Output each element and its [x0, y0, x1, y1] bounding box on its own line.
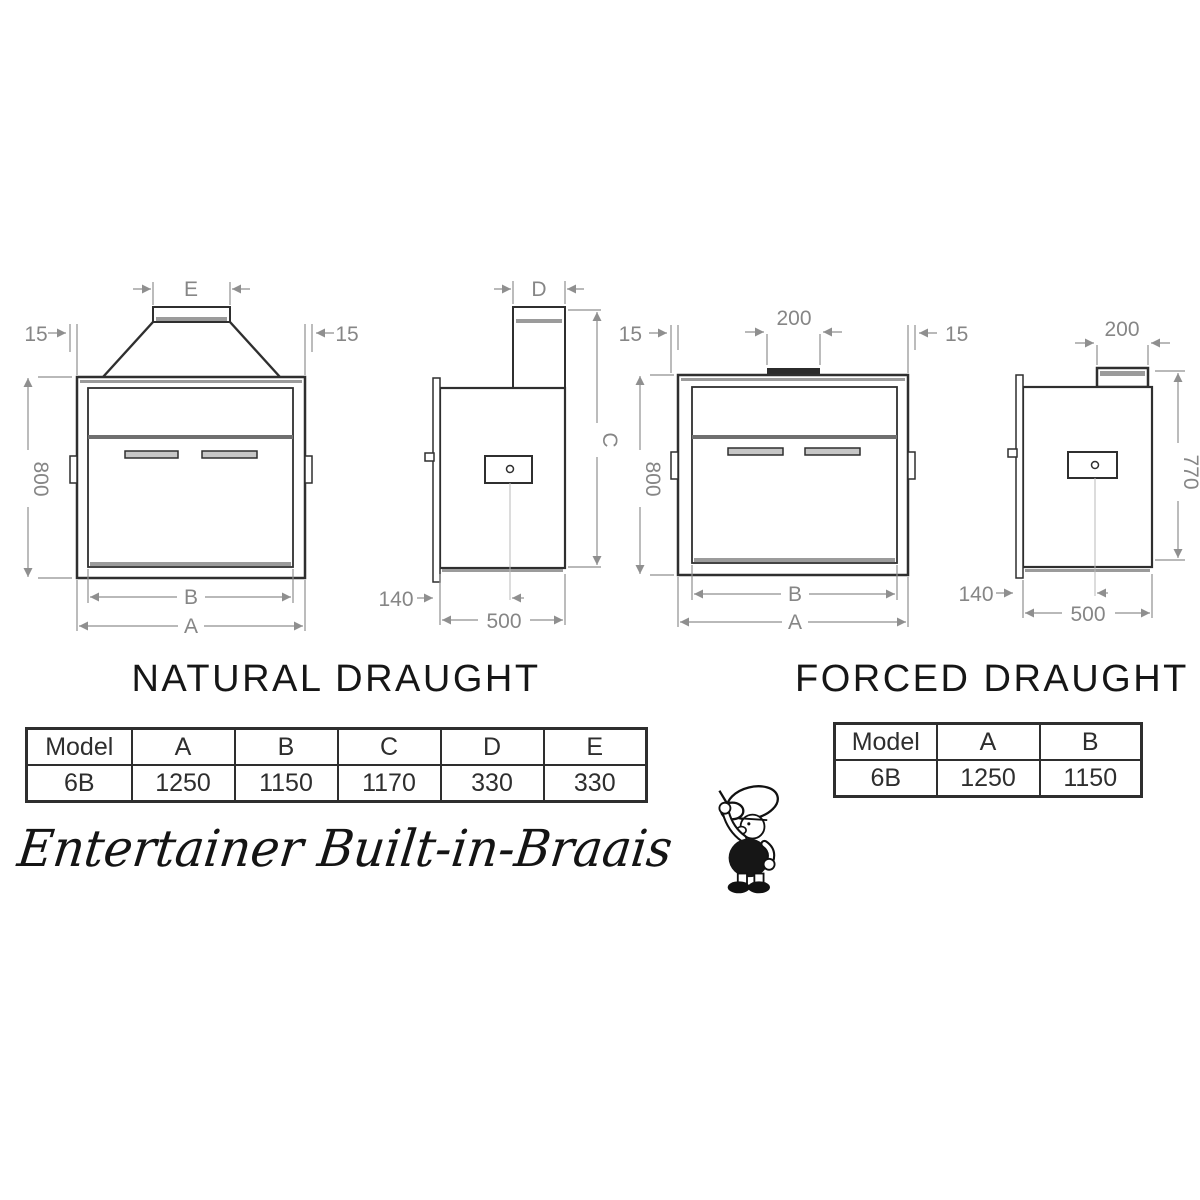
front-flange — [433, 378, 440, 582]
natural-front-view-drawing: E 15 15 800 B — [24, 278, 358, 638]
mounting-tab — [908, 452, 915, 479]
chef-mascot-icon — [701, 779, 793, 899]
dim-label-left-flange: 15 — [24, 323, 47, 346]
hood-right-slope — [230, 322, 280, 377]
value-cell: 1150 — [1040, 760, 1142, 797]
mounting-tab-side — [425, 453, 434, 461]
mounting-tab — [671, 452, 678, 479]
header-cell: Model — [27, 729, 132, 766]
dim-label-depth: 500 — [486, 610, 521, 633]
header-cell: A — [937, 724, 1040, 761]
dim-label-right-flange: 15 — [335, 323, 358, 346]
vent-slot — [805, 448, 860, 455]
fan-box — [1097, 368, 1148, 387]
dim-label-height: 800 — [29, 461, 52, 496]
dim-label-height: 800 — [641, 461, 664, 496]
natural-side-view-drawing: D C 140 500 — [378, 278, 621, 633]
table-row: 6B 1250 1150 — [835, 760, 1142, 797]
forced-draught-title: FORCED DRAUGHT — [795, 658, 1185, 701]
dim-label-inner-width: B — [788, 583, 802, 606]
value-cell: 1170 — [338, 765, 441, 802]
dim-label-overall-width: A — [788, 611, 802, 634]
header-cell: D — [441, 729, 544, 766]
control-box — [485, 456, 532, 483]
model-cell: 6B — [27, 765, 132, 802]
dim-label-overall-width: A — [184, 615, 198, 638]
mounting-tab — [70, 456, 77, 483]
dim-label-left-flange: 15 — [619, 323, 642, 346]
value-cell: 330 — [544, 765, 647, 802]
value-cell: 330 — [441, 765, 544, 802]
mounting-tab — [305, 456, 312, 483]
header-cell: Model — [835, 724, 937, 761]
value-cell: 1250 — [937, 760, 1040, 797]
header-cell: A — [132, 729, 235, 766]
dim-label-overall-height: C — [598, 432, 621, 447]
mounting-tab-side — [1008, 449, 1017, 457]
braai-spec-sheet: E 15 15 800 B — [0, 0, 1200, 1200]
dim-label-overall-height: 770 — [1179, 454, 1200, 489]
dim-label-fan-width: 200 — [1104, 318, 1139, 341]
product-slogan: Entertainer Built-in-Braais — [14, 820, 629, 879]
natural-draught-table: Model A B C D E 6B 1250 1150 1170 330 33… — [25, 727, 648, 803]
value-cell: 1250 — [132, 765, 235, 802]
table-header-row: Model A B C D E — [27, 729, 647, 766]
dim-label-inner-width: B — [184, 586, 198, 609]
header-cell: C — [338, 729, 441, 766]
braai-inner-chamber — [88, 388, 293, 567]
forced-side-view-drawing: 200 770 140 500 — [958, 318, 1200, 626]
dim-label-flue-width: 200 — [776, 307, 811, 330]
header-cell: B — [1040, 724, 1142, 761]
header-cell: E — [544, 729, 647, 766]
vent-slot — [125, 451, 178, 458]
dim-label-flue-width: D — [531, 278, 546, 301]
dim-label-hood-width: E — [184, 278, 198, 301]
braai-inner-chamber — [692, 387, 897, 563]
model-cell: 6B — [835, 760, 937, 797]
dim-label-right-flange: 15 — [945, 323, 968, 346]
forced-front-view-drawing: 200 15 15 800 B — [619, 307, 969, 634]
vent-slot — [728, 448, 783, 455]
table-row: 6B 1250 1150 1170 330 330 — [27, 765, 647, 802]
value-cell: 1150 — [235, 765, 338, 802]
forced-draught-table: Model A B 6B 1250 1150 — [833, 722, 1143, 798]
dim-label-front-offset: 140 — [378, 588, 413, 611]
header-cell: B — [235, 729, 338, 766]
hood-left-slope — [103, 322, 153, 377]
natural-draught-title: NATURAL DRAUGHT — [120, 658, 552, 701]
vent-slot — [202, 451, 257, 458]
control-box — [1068, 452, 1117, 478]
table-header-row: Model A B — [835, 724, 1142, 761]
dim-label-depth: 500 — [1070, 603, 1105, 626]
front-flange — [1016, 375, 1023, 578]
technical-drawings: E 15 15 800 B — [0, 0, 1200, 1200]
dim-label-front-offset: 140 — [958, 583, 993, 606]
